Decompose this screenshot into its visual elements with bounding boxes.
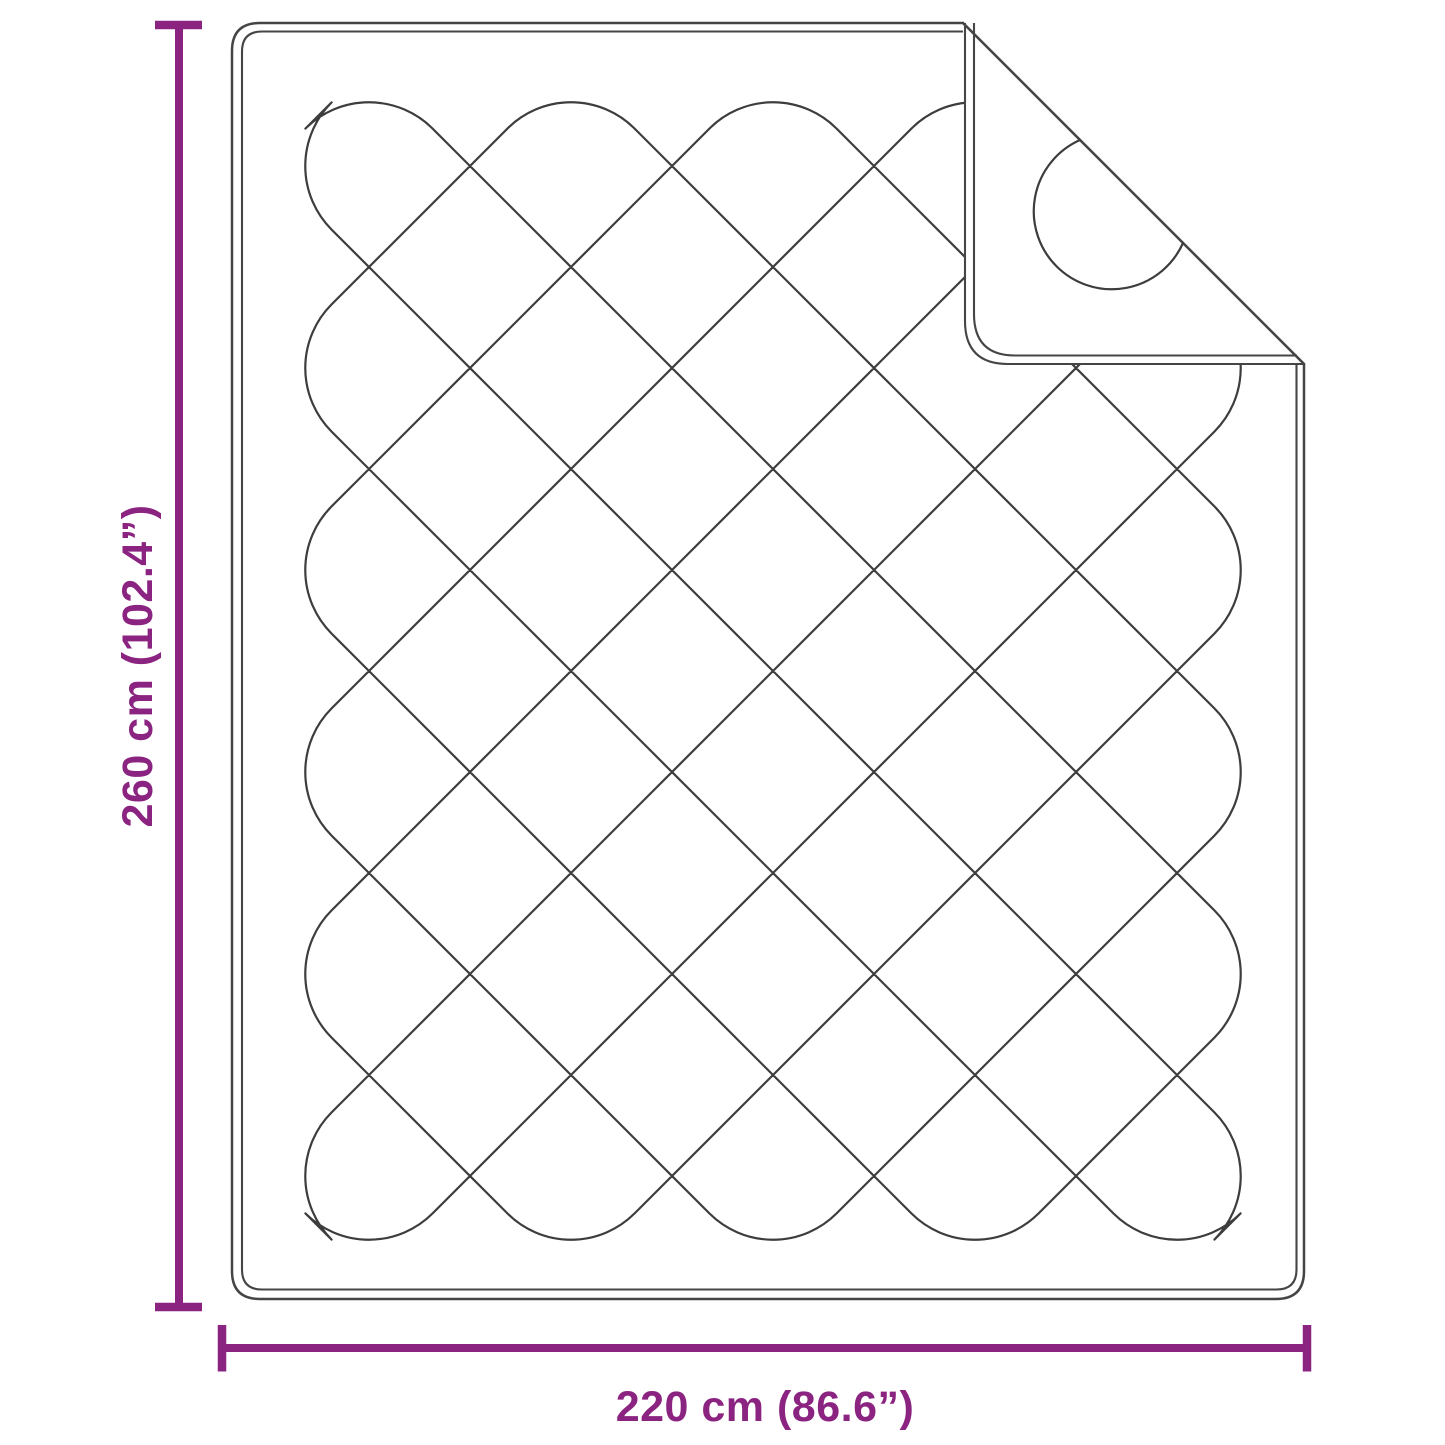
blanket-dimension-diagram: 260 cm (102.4”) 220 cm (86.6”) [0,0,1445,1445]
diagram-canvas: 260 cm (102.4”) 220 cm (86.6”) [0,0,1445,1445]
folded-corner-flap [963,23,1304,364]
height-dimension: 260 cm (102.4”) [114,25,202,1307]
width-dimension-label: 220 cm (86.6”) [616,1383,915,1431]
width-dimension: 220 cm (86.6”) [222,1325,1307,1431]
height-dimension-label: 260 cm (102.4”) [114,504,162,827]
blanket [232,23,1304,1299]
